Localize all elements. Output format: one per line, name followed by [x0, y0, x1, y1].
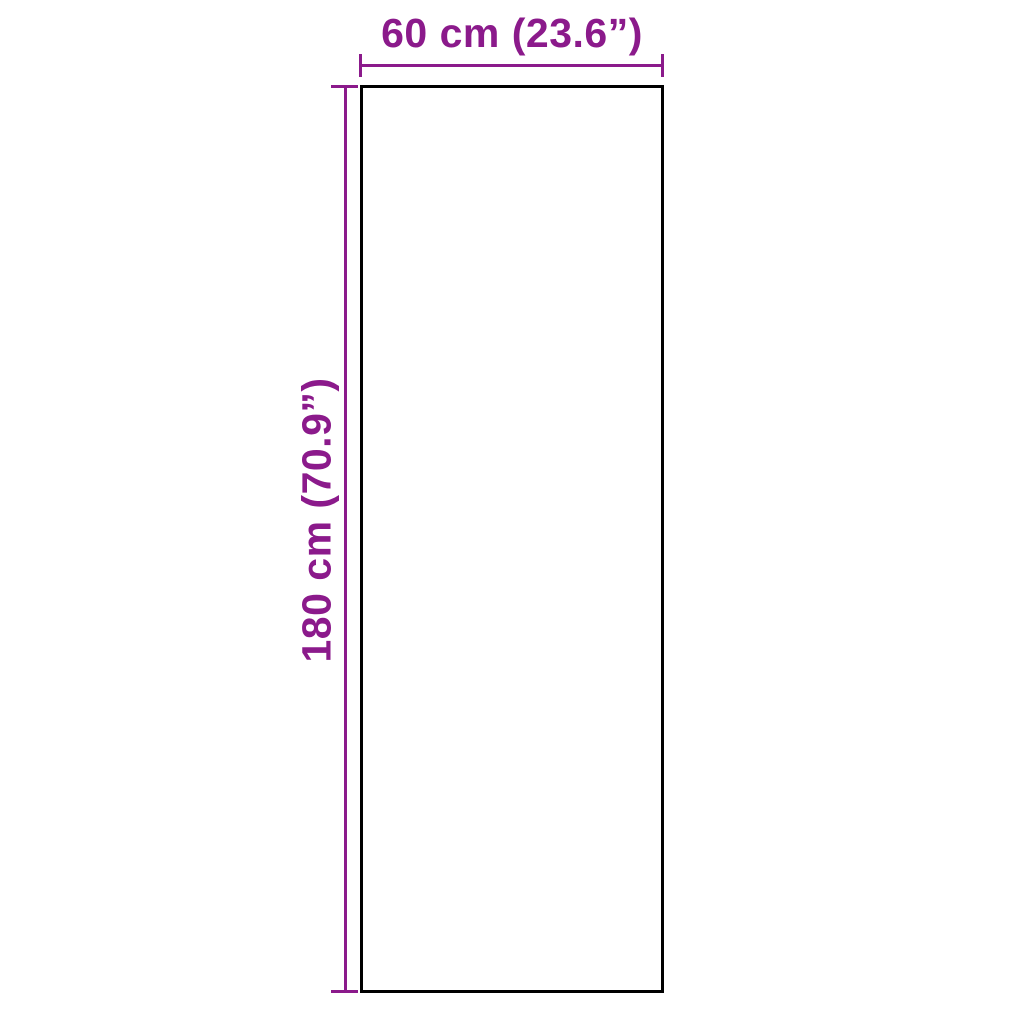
width-dimension-left-tick [359, 54, 362, 77]
product-outline-rectangle [360, 85, 664, 993]
height-dimension-top-tick [331, 85, 358, 88]
width-dimension-right-tick [661, 54, 664, 77]
height-dimension-line [344, 85, 347, 993]
width-dimension-line [359, 64, 664, 67]
dimension-diagram: 60 cm (23.6”) 180 cm (70.9”) [0, 0, 1024, 1024]
height-dimension-bottom-tick [331, 990, 358, 993]
height-dimension-label: 180 cm (70.9”) [294, 377, 341, 662]
width-dimension-label: 60 cm (23.6”) [340, 10, 684, 56]
